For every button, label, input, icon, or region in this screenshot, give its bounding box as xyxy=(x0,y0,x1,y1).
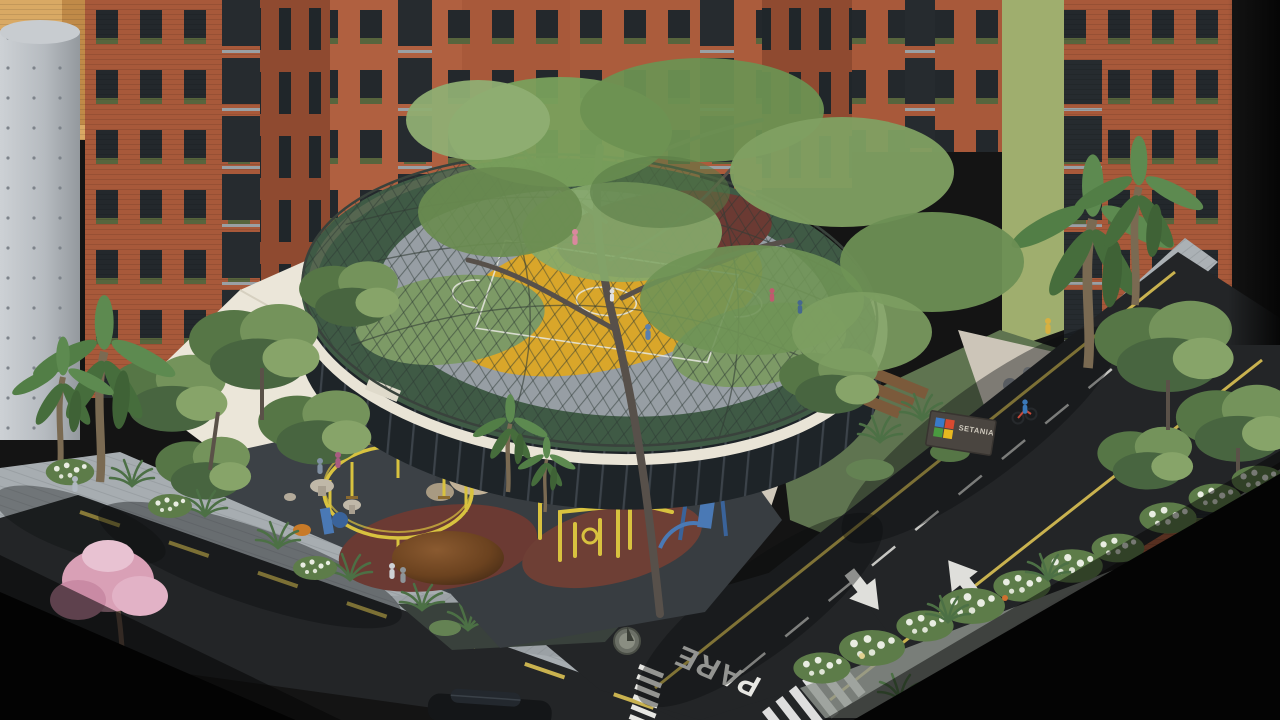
hedge-wall xyxy=(1002,0,1064,352)
play-mound xyxy=(392,531,504,585)
architectural-render: PARE xyxy=(0,0,1280,720)
waste-bin xyxy=(293,524,311,536)
right-edge-fade xyxy=(1228,0,1280,345)
